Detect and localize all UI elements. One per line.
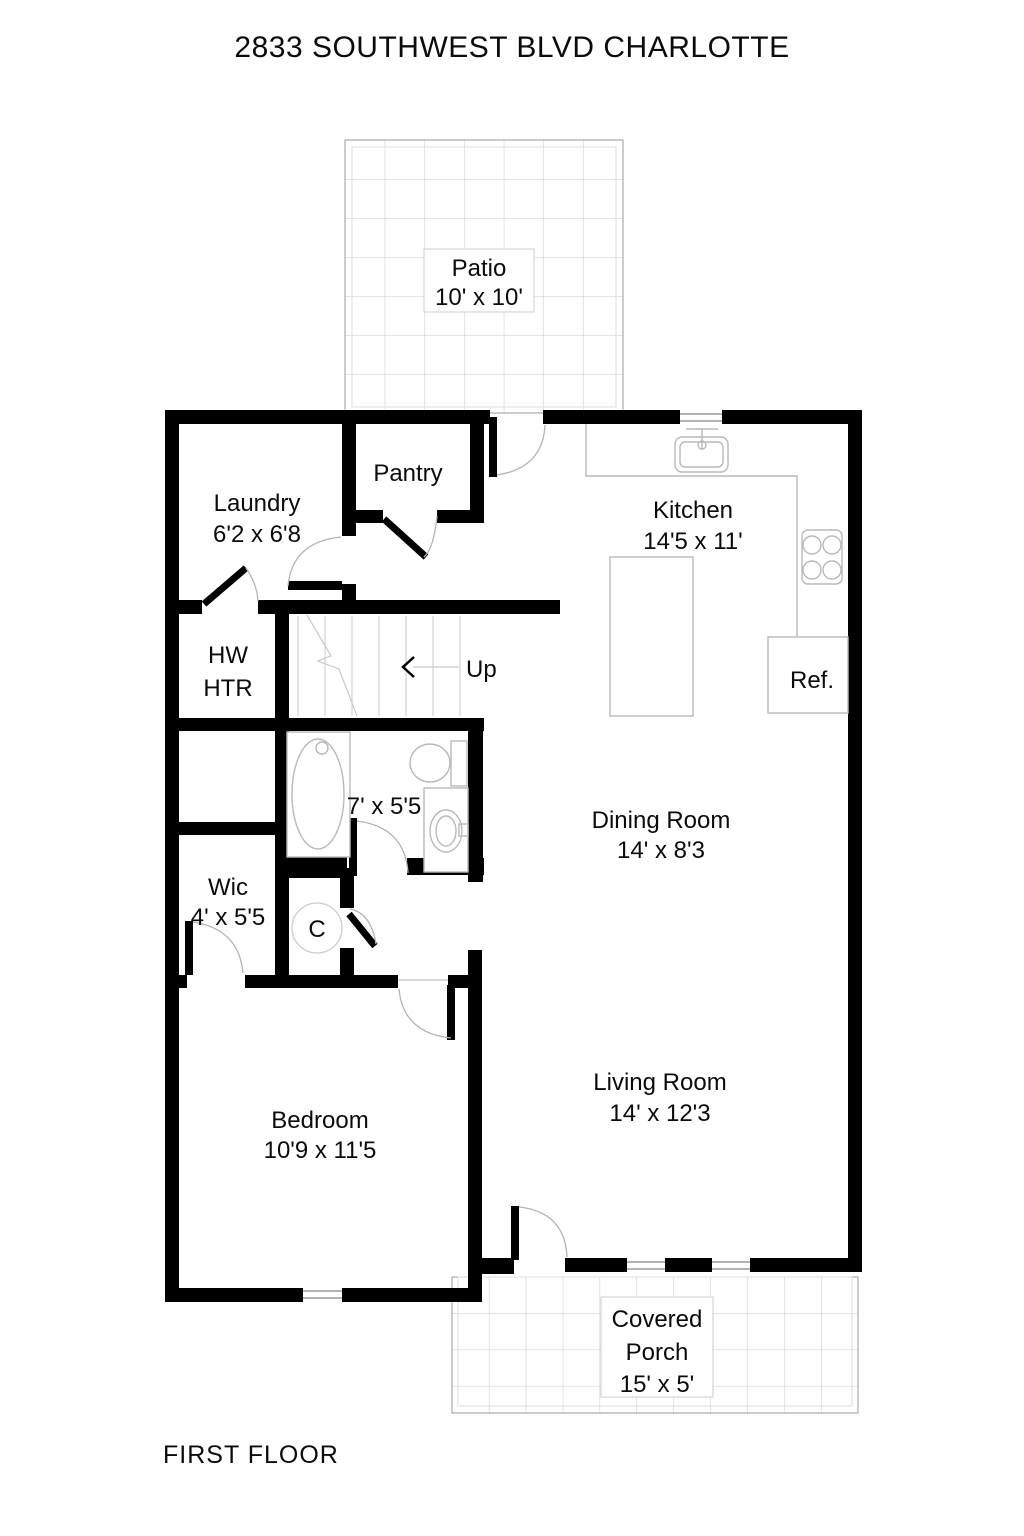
- stove-cooktop: [802, 530, 842, 584]
- patio-door-arc: [497, 425, 545, 475]
- wall-segment: [258, 600, 560, 614]
- wall-segment: [342, 584, 356, 600]
- wall-segment: [275, 857, 347, 878]
- wall-segment: [543, 410, 680, 424]
- wall-segment: [165, 410, 179, 1302]
- pantry-label: Pantry: [373, 460, 442, 487]
- pantry-door-arc: [424, 516, 437, 557]
- floor-name-label: FIRST FLOOR: [163, 1441, 339, 1469]
- patio-label: Patio: [452, 255, 507, 282]
- stairs-up-label: Up: [466, 656, 497, 683]
- staircase: [298, 615, 460, 716]
- stair-break-line: [307, 615, 357, 716]
- floor-plan-drawing: 2833 SOUTHWEST BLVD CHARLOTTE Patio 10' …: [0, 0, 1024, 1536]
- wall-segment: [165, 410, 490, 424]
- floor-plan-page: 2833 SOUTHWEST BLVD CHARLOTTE Patio 10' …: [0, 0, 1024, 1536]
- kitchen-island: [610, 557, 693, 716]
- laundry-kitchen-door-leaf: [288, 581, 342, 590]
- pantry-door-leaf: [384, 519, 426, 557]
- wall-segment: [165, 718, 484, 731]
- hw-htr-label-line1: HW: [208, 642, 248, 669]
- wall-segment: [722, 410, 862, 424]
- bedroom-label: Bedroom: [271, 1107, 368, 1134]
- refrigerator-label: Ref.: [790, 667, 834, 694]
- bathtub: [287, 732, 350, 857]
- wall-segment: [165, 1288, 303, 1302]
- living-label: Living Room: [593, 1069, 726, 1096]
- bedroom-dims: 10'9 x 11'5: [264, 1137, 377, 1164]
- wall-segment: [470, 424, 484, 523]
- wall-segment: [665, 1258, 712, 1272]
- wall-segment: [165, 975, 187, 988]
- dining-dims: 14' x 8'3: [617, 837, 705, 864]
- wall-segment: [468, 718, 483, 882]
- kitchen-label: Kitchen: [653, 497, 733, 524]
- plan-title: 2833 SOUTHWEST BLVD CHARLOTTE: [234, 31, 789, 64]
- patio-dims: 10' x 10': [435, 284, 523, 311]
- laundry-label: Laundry: [214, 490, 301, 517]
- laundry-door-leaf: [204, 568, 246, 604]
- laundry-dims: 6'2 x 6'8: [213, 521, 301, 548]
- closet-door-leaf: [349, 914, 375, 946]
- toilet-tank: [451, 741, 467, 786]
- closet-label: C: [308, 916, 325, 943]
- bathroom-dims: 7' x 5'5: [347, 793, 422, 820]
- wall-segment: [848, 410, 862, 1272]
- bedroom-door-arc: [399, 989, 451, 1038]
- wall-segment: [437, 510, 484, 523]
- laundry-door-arc: [246, 568, 258, 601]
- wall-segment: [342, 1288, 482, 1302]
- hw-htr-label-line2: HTR: [203, 675, 252, 702]
- wall-segment: [165, 822, 287, 835]
- living-dims: 14' x 12'3: [609, 1100, 710, 1127]
- dining-label: Dining Room: [592, 807, 731, 834]
- wall-segment: [468, 1258, 514, 1274]
- wall-segment: [356, 510, 383, 523]
- wic-label: Wic: [208, 874, 248, 901]
- porch-dims: 15' x 5': [620, 1371, 695, 1398]
- porch-label-line2: Porch: [626, 1339, 689, 1366]
- kitchen-dims: 14'5 x 11': [643, 528, 742, 555]
- bedroom-door-leaf: [447, 985, 455, 1040]
- wic-dims: 4' x 5'5: [191, 904, 266, 931]
- wall-segment: [342, 424, 356, 536]
- porch-label-line1: Covered: [612, 1306, 703, 1333]
- front-door-arc: [519, 1207, 567, 1257]
- bathroom-door-arc: [357, 821, 408, 873]
- wall-segment: [179, 600, 202, 614]
- wall-segment: [565, 1258, 627, 1272]
- wall-segment: [275, 614, 289, 718]
- up-arrow-icon: [403, 657, 414, 677]
- front-door-leaf: [511, 1206, 519, 1260]
- toilet-bowl: [410, 744, 450, 782]
- patio-door-leaf: [489, 417, 497, 477]
- wall-segment: [468, 950, 482, 1302]
- wall-segment: [245, 975, 398, 988]
- wall-segment: [750, 1258, 862, 1272]
